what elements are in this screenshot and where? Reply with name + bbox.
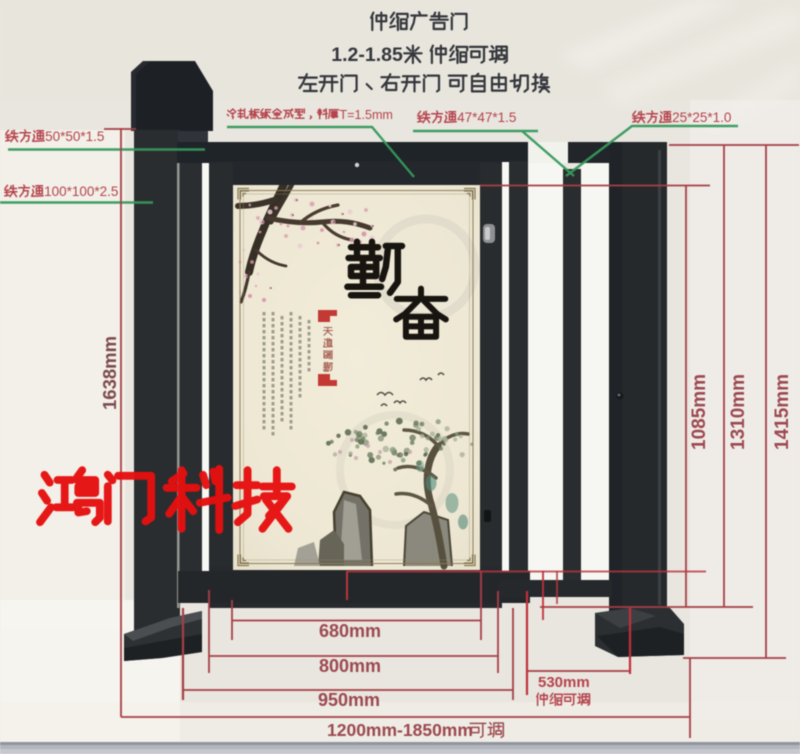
svg-text:T=1.5mm: T=1.5mm	[339, 108, 393, 122]
svg-text:1085mm: 1085mm	[689, 374, 710, 450]
svg-text:1.2-1.85: 1.2-1.85	[331, 44, 403, 66]
svg-text:1638mm: 1638mm	[99, 336, 120, 410]
svg-text:25*25*1.0: 25*25*1.0	[672, 110, 731, 125]
svg-text:1200mm-1850mm: 1200mm-1850mm	[327, 720, 473, 740]
svg-text:800mm: 800mm	[319, 656, 381, 676]
svg-text:1415mm: 1415mm	[772, 374, 793, 450]
svg-text:530mm: 530mm	[538, 674, 590, 691]
svg-text:680mm: 680mm	[319, 621, 381, 641]
svg-text:1310mm: 1310mm	[728, 374, 749, 450]
svg-text:50*50*1.5: 50*50*1.5	[45, 129, 104, 144]
svg-text:100*100*2.5: 100*100*2.5	[44, 184, 118, 199]
svg-text:950mm: 950mm	[318, 690, 380, 710]
svg-text:47*47*1.5: 47*47*1.5	[457, 110, 516, 125]
